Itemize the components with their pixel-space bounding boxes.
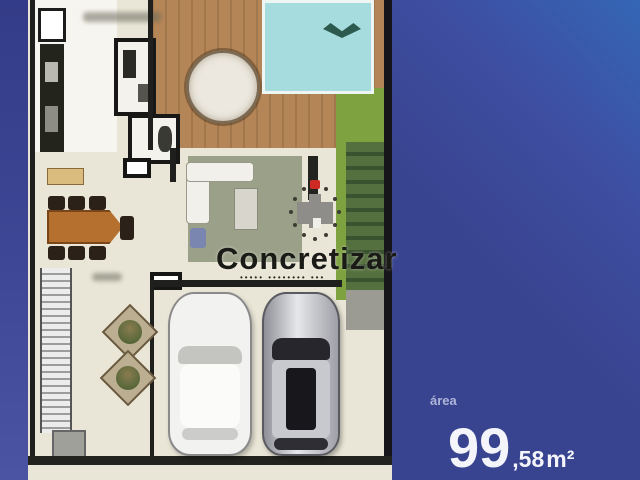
car-rear-window xyxy=(182,428,238,440)
concretizar-logo-icon xyxy=(289,178,341,244)
planter xyxy=(100,350,157,407)
dining-chair xyxy=(48,196,65,210)
logo-figure xyxy=(297,202,309,224)
bathroom-fixture xyxy=(123,50,136,78)
staircase xyxy=(40,268,72,433)
watermark-tagline: ••••• •••••••• ••• xyxy=(240,273,390,283)
dining-chair xyxy=(68,246,85,260)
logo-figure xyxy=(321,202,333,224)
logo-notch xyxy=(313,218,321,228)
left-blue-band xyxy=(0,0,28,480)
utility-room xyxy=(38,8,66,42)
car-rear-window xyxy=(274,438,328,450)
kitchen-counter xyxy=(40,44,64,152)
car-roof xyxy=(272,360,330,438)
wall-window xyxy=(123,158,151,178)
wall xyxy=(30,0,35,465)
watermark-brand-text: Concretizar xyxy=(216,241,426,273)
concrete-path xyxy=(346,290,386,330)
right-blue-panel xyxy=(392,0,640,480)
room-label-blur xyxy=(92,273,122,281)
pool-hammock-icon xyxy=(323,23,361,38)
area-unit: m² xyxy=(546,446,574,473)
sideboard xyxy=(47,168,84,185)
car-windshield xyxy=(272,338,330,360)
white-car xyxy=(168,292,252,456)
swimming-pool xyxy=(262,0,374,94)
dining-chair xyxy=(48,246,65,260)
wall xyxy=(170,148,176,182)
dining-chair xyxy=(120,216,134,240)
dining-table xyxy=(47,210,123,244)
car-windshield xyxy=(178,346,242,364)
area-value-main: 99 xyxy=(448,420,510,476)
area-label: área xyxy=(430,393,457,408)
wall xyxy=(384,0,392,465)
car-sunroof xyxy=(286,368,316,430)
kitchen-sink xyxy=(45,62,58,82)
plant xyxy=(113,315,147,349)
silver-car xyxy=(262,292,340,456)
plant xyxy=(111,361,145,395)
area-value-decimal: ,58 xyxy=(512,446,544,473)
kitchen-stove xyxy=(45,106,58,132)
logo-red-accent xyxy=(310,180,320,189)
wall xyxy=(28,456,392,465)
wall xyxy=(148,0,153,150)
area-value: 99 ,58 m² xyxy=(448,420,574,476)
armchair xyxy=(190,228,206,248)
dining-chair xyxy=(89,196,106,210)
storage-box xyxy=(52,430,86,458)
sofa xyxy=(186,162,254,182)
dining-chair xyxy=(89,246,106,260)
dining-chair xyxy=(68,196,85,210)
listing-image: Concretizar ••••• •••••••• ••• área 99 ,… xyxy=(0,0,640,480)
coffee-table xyxy=(234,188,258,230)
car-roof xyxy=(180,364,240,428)
round-deck-table xyxy=(186,50,260,124)
